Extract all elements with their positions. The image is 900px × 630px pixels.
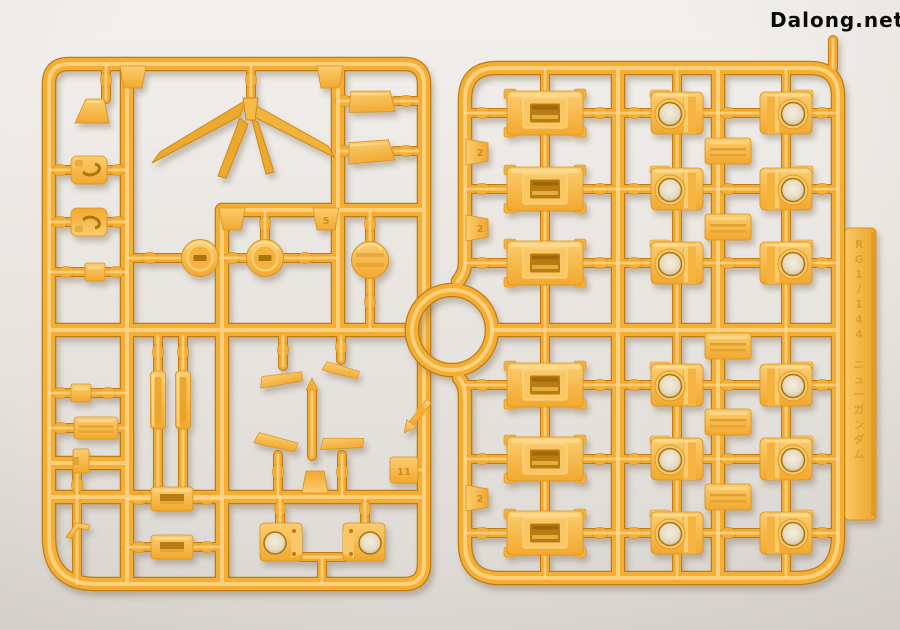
eyelet-cylinder-part — [650, 166, 703, 210]
buckle-frame-part — [504, 165, 586, 213]
runner-name-tag: RG1/144 ニューガンダム — [845, 228, 876, 520]
mask-vent-part — [71, 156, 107, 184]
slotted-disc-part — [182, 240, 219, 277]
slat-part — [151, 371, 166, 429]
buckle-frame-part — [504, 89, 586, 137]
gate-tab — [219, 208, 245, 230]
hinge-box-part — [260, 523, 302, 561]
buckle-frame-part — [504, 239, 586, 287]
eyelet-cylinder-part — [650, 90, 703, 134]
sprue-photo: 5 11 RG1/144 ニューガンダム — [0, 0, 900, 630]
gate-number: 5 — [323, 216, 330, 227]
eyelet-cylinder-part — [760, 362, 813, 406]
ridged-plate-part — [705, 484, 751, 510]
gate-tab — [317, 66, 343, 88]
frame-loop-part — [151, 535, 193, 559]
ridged-plate-part — [705, 138, 751, 164]
small-square-part — [85, 263, 105, 281]
eyelet-cylinder-part — [760, 436, 813, 480]
eyelet-cylinder-part — [760, 240, 813, 284]
part-number: 11 — [397, 467, 411, 478]
part-number-tag: 11 — [390, 457, 418, 483]
gate-number: 2 — [477, 494, 484, 505]
eyelet-cylinder-part — [650, 436, 703, 480]
solid-disc-part — [352, 242, 389, 279]
eyelet-cylinder-part — [650, 510, 703, 554]
small-square-part — [71, 384, 91, 402]
eyelet-cylinder-part — [760, 90, 813, 134]
mask-vent-part — [71, 208, 107, 236]
frame-loop-part — [151, 487, 193, 511]
gate-tab — [120, 66, 146, 88]
eyelet-cylinder-part — [650, 362, 703, 406]
flat-plate-part — [74, 417, 118, 439]
eyelet-cylinder-part — [760, 166, 813, 210]
buckle-frame-part — [504, 509, 586, 557]
slotted-disc-part — [247, 240, 284, 277]
gate-number: 2 — [477, 224, 484, 235]
buckle-frame-part — [504, 435, 586, 483]
ridged-plate-part — [705, 333, 751, 359]
clip-part — [73, 449, 89, 473]
hinge-box-part — [343, 523, 385, 561]
ridged-plate-part — [705, 214, 751, 240]
eyelet-cylinder-part — [760, 510, 813, 554]
watermark-text: Dalong.net — [770, 8, 900, 32]
eyelet-cylinder-part — [650, 240, 703, 284]
gate-tab — [302, 471, 328, 493]
gate-number: 2 — [477, 148, 484, 159]
wedge-part — [347, 87, 395, 117]
photo-scene: 5 11 RG1/144 ニューガンダム — [0, 0, 900, 630]
slat-part — [176, 371, 191, 429]
ridged-plate-part — [705, 409, 751, 435]
buckle-frame-part — [504, 361, 586, 409]
